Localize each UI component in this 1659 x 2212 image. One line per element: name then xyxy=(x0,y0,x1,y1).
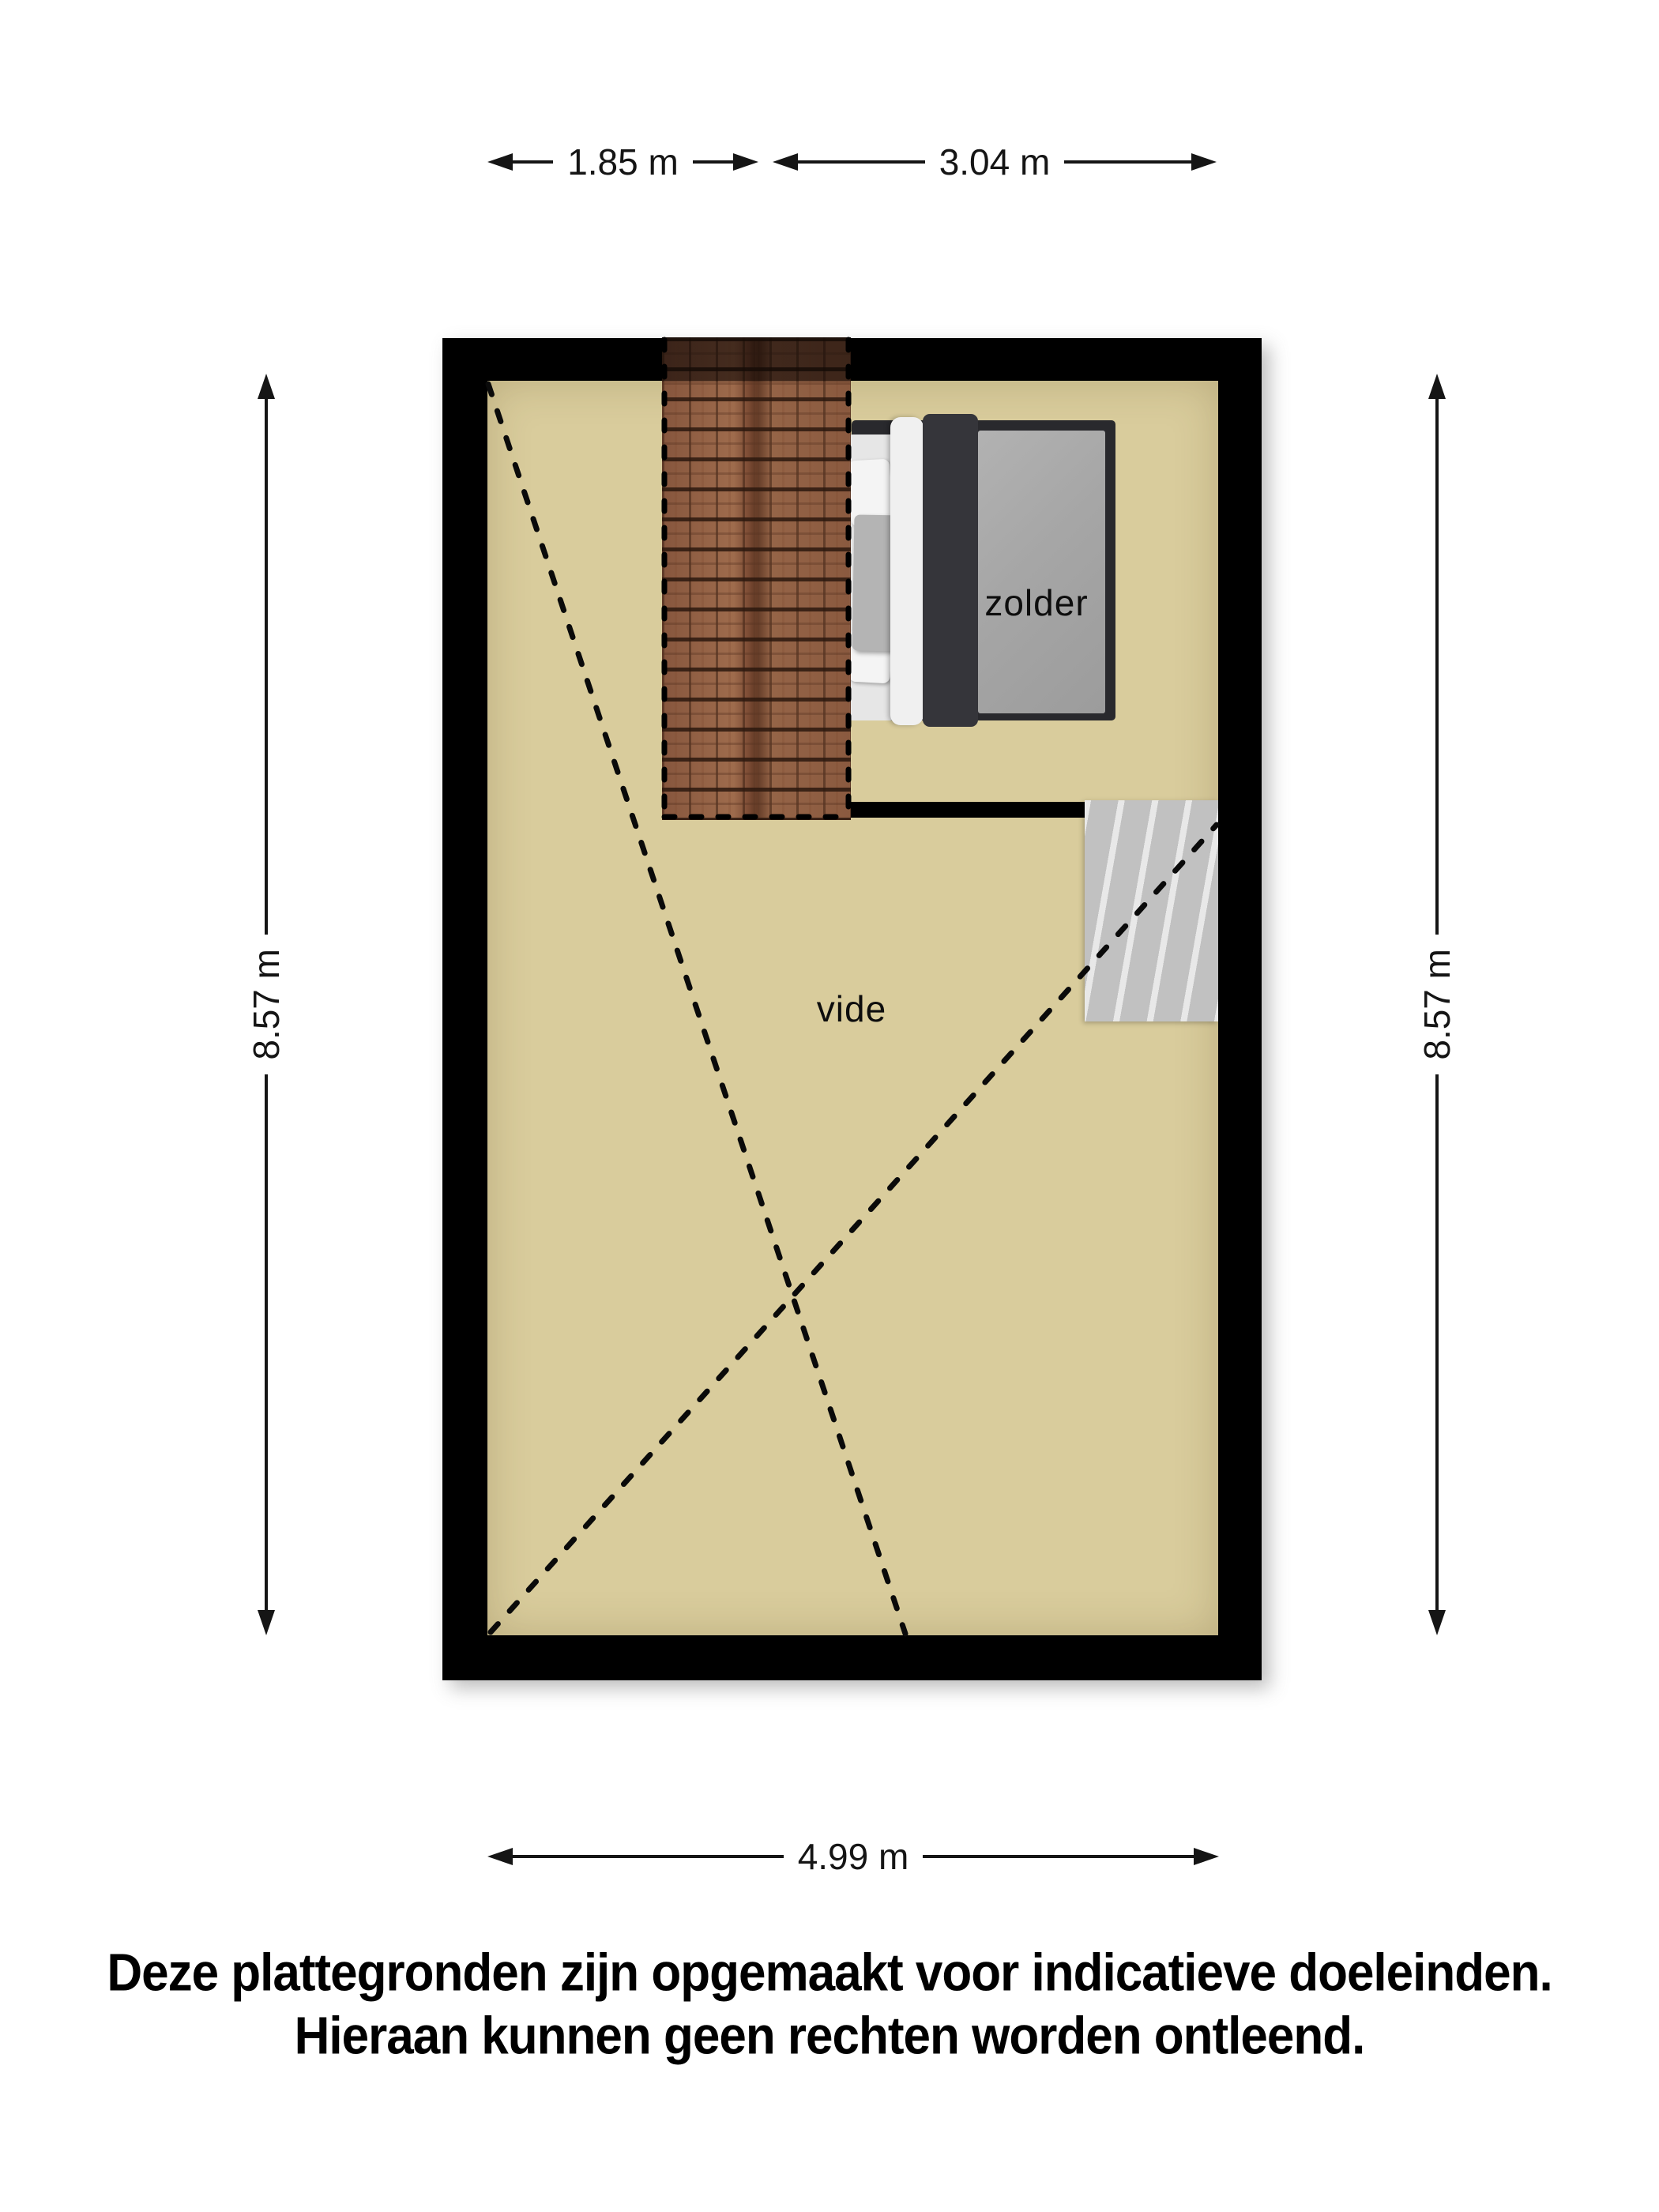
dimension-line xyxy=(265,399,268,935)
dimension-line xyxy=(265,1074,268,1610)
arrow-up-icon xyxy=(1428,374,1446,399)
dimension-line xyxy=(693,160,733,164)
room-label-vide: vide xyxy=(773,987,931,1030)
dimension-right: 8.57 m xyxy=(1413,374,1461,1635)
room-label-zolder: zolder xyxy=(957,581,1115,624)
dimension-line xyxy=(798,160,925,164)
dimension-line xyxy=(513,160,553,164)
staircase xyxy=(1085,800,1218,1021)
dimension-line xyxy=(1435,1074,1439,1610)
arrow-up-icon xyxy=(258,374,275,399)
arrow-left-icon xyxy=(773,153,798,171)
dimension-top-right-label: 3.04 m xyxy=(925,141,1065,183)
floor-plan-page: 1.85 m 3.04 m 8.57 m 8.57 m 4.99 m xyxy=(0,0,1659,2212)
dimension-line xyxy=(1435,399,1439,935)
dimension-left: 8.57 m xyxy=(243,374,290,1635)
inner-wall xyxy=(851,802,1085,818)
dimension-top-left-label: 1.85 m xyxy=(553,141,693,183)
disclaimer-line-2: Hieraan kunnen geen rechten worden ontle… xyxy=(0,2005,1659,2068)
bed-sheet-fold xyxy=(890,417,924,725)
dimension-line xyxy=(513,1855,784,1858)
arrow-right-icon xyxy=(733,153,758,171)
dimension-line xyxy=(1064,160,1191,164)
dimension-top-left: 1.85 m xyxy=(487,145,758,179)
arrow-right-icon xyxy=(1191,153,1217,171)
disclaimer-line-1: Deze plattegronden zijn opgemaakt voor i… xyxy=(0,1942,1659,2005)
dimension-left-label: 8.57 m xyxy=(245,935,288,1074)
dimension-line xyxy=(923,1855,1194,1858)
arrow-right-icon xyxy=(1194,1848,1219,1865)
disclaimer: Deze plattegronden zijn opgemaakt voor i… xyxy=(0,1942,1659,2068)
roof-tile-strip xyxy=(662,337,851,820)
dimension-top-right: 3.04 m xyxy=(773,145,1217,179)
arrow-down-icon xyxy=(1428,1610,1446,1635)
dimension-bottom-label: 4.99 m xyxy=(784,1835,924,1878)
bed-duvet-band xyxy=(923,414,978,727)
arrow-left-icon xyxy=(487,153,513,171)
arrow-down-icon xyxy=(258,1610,275,1635)
dimension-bottom: 4.99 m xyxy=(487,1839,1219,1874)
arrow-left-icon xyxy=(487,1848,513,1865)
bed-blanket xyxy=(978,431,1105,713)
dimension-right-label: 8.57 m xyxy=(1416,935,1458,1074)
